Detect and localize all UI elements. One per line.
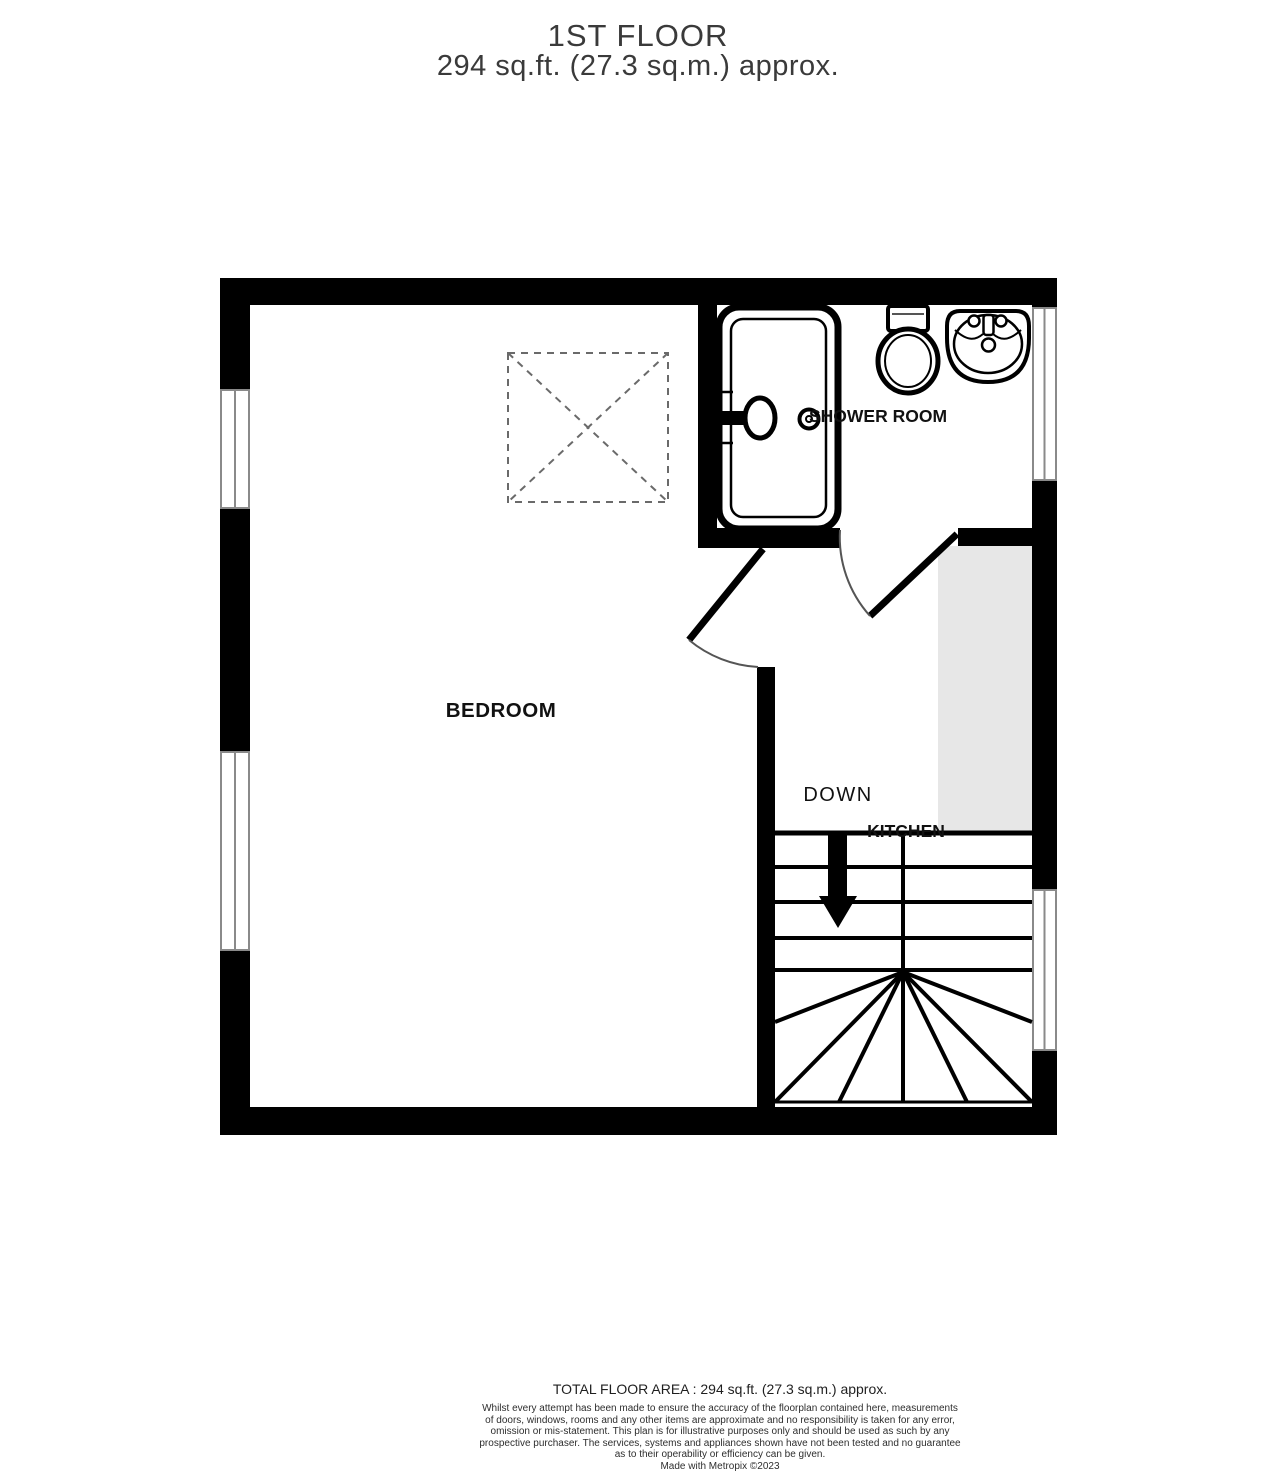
skylight-icon [508,353,668,502]
floorplan-drawing: BEDROOM SHOWER ROOM KITCHEN DOWN [200,260,1080,1160]
floor-name: 1ST FLOOR [198,20,1078,51]
credit-line: Made with Metropix ©2023 [360,1461,1080,1472]
kitchen-label: KITCHEN [867,821,945,841]
down-arrow-icon [819,833,857,928]
total-floor-area: TOTAL FLOOR AREA : 294 sq.ft. (27.3 sq.m… [360,1381,1080,1398]
sink-icon [947,311,1029,382]
staircase [775,833,1032,1102]
shower-room-label: SHOWER ROOM [809,406,947,426]
void-area [938,546,1032,833]
bedroom-label: BEDROOM [446,699,557,722]
disclaimer-line: prospective purchaser. The services, sys… [360,1438,1080,1450]
toilet-icon [878,306,938,393]
floor-area: 294 sq.ft. (27.3 sq.m.) approx. [198,51,1078,82]
disclaimer-line: omission or mis-statement. This plan is … [360,1426,1080,1438]
disclaimer-line: of doors, windows, rooms and any other i… [360,1415,1080,1427]
disclaimer: Whilst every attempt has been made to en… [360,1403,1080,1472]
down-label: DOWN [803,784,872,806]
window [221,390,249,508]
window [221,752,249,950]
floorplan-title: 1ST FLOOR 294 sq.ft. (27.3 sq.m.) approx… [198,20,1078,82]
disclaimer-line: Whilst every attempt has been made to en… [360,1403,1080,1415]
window [1033,890,1056,1050]
door-swing [689,549,763,667]
disclaimer-line: as to their operability or efficiency ca… [360,1449,1080,1461]
footer: TOTAL FLOOR AREA : 294 sq.ft. (27.3 sq.m… [360,1381,1080,1472]
window [1033,308,1056,480]
